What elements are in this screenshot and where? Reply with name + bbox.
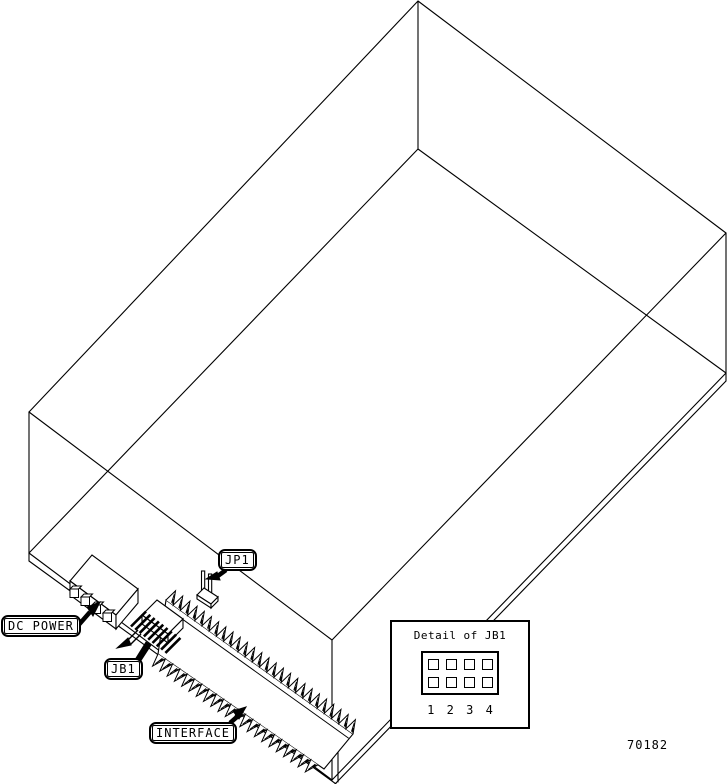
interface-label: INTERFACE [152,725,234,741]
dc-power-label: DC POWER [4,618,78,634]
jumper-pin-cell [464,677,475,688]
interface-connector [151,589,361,775]
jumper-pin-cell [482,659,493,670]
pin-number: 3 [460,703,480,717]
jb1-label: JB1 [107,661,140,677]
jb1-pin1-marker-arrow [117,630,141,648]
jumper-pin-cell [446,659,457,670]
pin-number: 1 [421,703,441,717]
detail-inset-title: Detail of JB1 [392,629,528,642]
dc-power-callout: DC POWER [1,615,81,637]
jumper-pin-cell [482,677,493,688]
jumper-pin-cell [428,659,439,670]
jumper-pin-cell [428,677,439,688]
figure-canvas: DC POWER JB1 JP1 INTERFACE Detail of JB1… [0,0,727,784]
jb1-pin-grid [421,651,499,695]
jp1-callout: JP1 [218,549,257,571]
jb1-detail-inset: Detail of JB1 1 2 3 4 [390,620,530,729]
pin-number: 2 [441,703,461,717]
jb1-pin-numbers: 1 2 3 4 [421,703,499,717]
interface-callout: INTERFACE [149,722,237,744]
jb1-callout: JB1 [104,658,143,680]
figure-number: 70182 [627,738,668,752]
pin-number: 4 [480,703,500,717]
jumper-pin-cell [446,677,457,688]
jumper-pin-cell [464,659,475,670]
jp1-label: JP1 [221,552,254,568]
